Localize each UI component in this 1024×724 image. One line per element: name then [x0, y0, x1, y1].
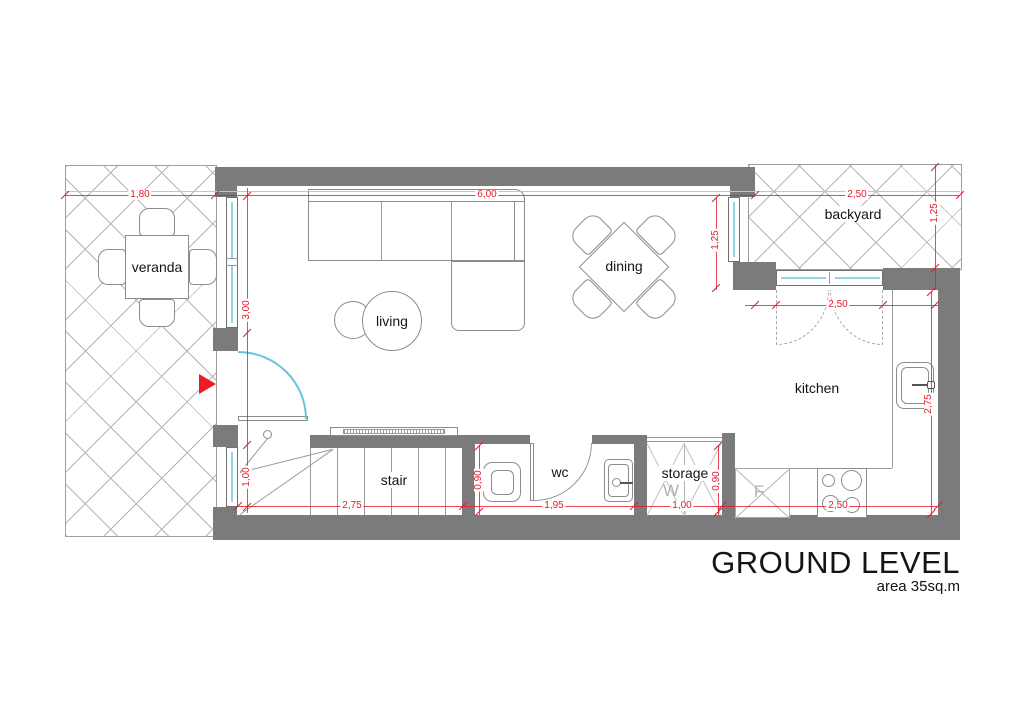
stair-tread [364, 448, 365, 515]
toilet-bowl [491, 470, 514, 495]
entry-window-glass [231, 452, 233, 502]
dimension-label: 2,75 [340, 501, 363, 511]
wall-bottom [213, 515, 960, 540]
wc-sink-faucet-handle [620, 482, 633, 484]
dimension-label: 1,00 [670, 501, 693, 511]
stair-tread [418, 448, 419, 515]
stair-tread [337, 448, 338, 515]
room-label-dining: dining [602, 258, 645, 274]
dimension-line [247, 188, 248, 513]
living-window-glass [231, 266, 233, 323]
veranda-chair [139, 299, 175, 327]
backyard-door-mullion [829, 272, 830, 284]
dimension-label: 6,00 [475, 190, 498, 200]
dimension-label: 2,50 [845, 190, 868, 200]
room-label-stair: stair [378, 472, 410, 488]
dimension-label: 3,00 [242, 298, 252, 321]
dimension-label: 0,90 [474, 468, 484, 491]
room-label-living: living [373, 313, 411, 329]
backyard-door-glass [835, 277, 880, 279]
sofa-chaise [451, 261, 525, 331]
dimension-line [65, 195, 960, 196]
veranda-chair [98, 249, 126, 285]
washer-letter: W [663, 481, 679, 501]
storage-partition [647, 441, 722, 442]
room-label-veranda: veranda [129, 259, 186, 275]
sofa-armrest [514, 201, 525, 261]
title-block: GROUND LEVEL area 35sq.m [711, 547, 960, 595]
wall-kitchen-top-left-pier [733, 262, 776, 290]
living-window-mullion [226, 265, 238, 266]
wall-stair-top [310, 435, 475, 448]
wall-wc-top-left [475, 435, 530, 444]
dimension-label: 1,25 [930, 201, 940, 224]
wall-top [215, 167, 755, 186]
living-window-glass [231, 202, 233, 258]
sofa-seat-divider [381, 202, 382, 260]
dimension-label: 2,50 [826, 300, 849, 310]
wall-kitchen-top-right-pier [883, 268, 960, 290]
backyard-door-glass [781, 277, 826, 279]
room-label-backyard: backyard [822, 206, 885, 222]
dining-window-glass [733, 202, 735, 257]
plan-area: area 35sq.m [711, 579, 960, 595]
veranda-chair [139, 208, 175, 236]
backyard-door-swing-jamb [776, 290, 777, 345]
wall-left-pier-2 [213, 425, 238, 447]
dimension-label: 1,25 [711, 228, 721, 251]
fridge-letter: F [754, 482, 764, 502]
wall-left-pier-1 [213, 328, 238, 351]
living-window-mullion [226, 258, 238, 259]
stair-newel [263, 430, 272, 439]
sofa-seats [308, 201, 515, 261]
extension-line [65, 191, 960, 192]
dimension-label: 2,50 [826, 501, 849, 511]
stair-tread [310, 448, 311, 515]
dimension-label: 1,80 [128, 190, 151, 200]
room-label-kitchen: kitchen [792, 380, 842, 396]
entrance-arrow-icon [199, 374, 216, 394]
stair-tread [445, 448, 446, 515]
room-label-storage: storage [659, 465, 712, 481]
sofa-seat-divider [451, 202, 452, 260]
room-label-wc: wc [548, 464, 571, 480]
dimension-label: 1,95 [542, 501, 565, 511]
dimension-label: 2,75 [924, 392, 934, 415]
stove-burner [841, 470, 862, 491]
tv-console-hatch [343, 429, 445, 434]
plan-title: GROUND LEVEL [711, 547, 960, 579]
veranda-chair [189, 249, 217, 285]
backyard-door-swing-jamb [882, 290, 883, 345]
entrance-door-swing [238, 351, 307, 419]
stove-burner [822, 474, 835, 487]
dimension-line [935, 165, 936, 290]
wall-right [938, 268, 960, 518]
kitchen-counter-edge [892, 290, 893, 468]
storage-partition [647, 437, 722, 438]
floor-plan: 1,80 6,00 2,50 3,00 1,00 1,25 1,25 2,50 … [0, 0, 1024, 724]
dimension-label: 1,00 [242, 465, 252, 488]
dimension-label: 0,90 [712, 469, 722, 492]
backyard-door-swing-left [776, 290, 829, 345]
